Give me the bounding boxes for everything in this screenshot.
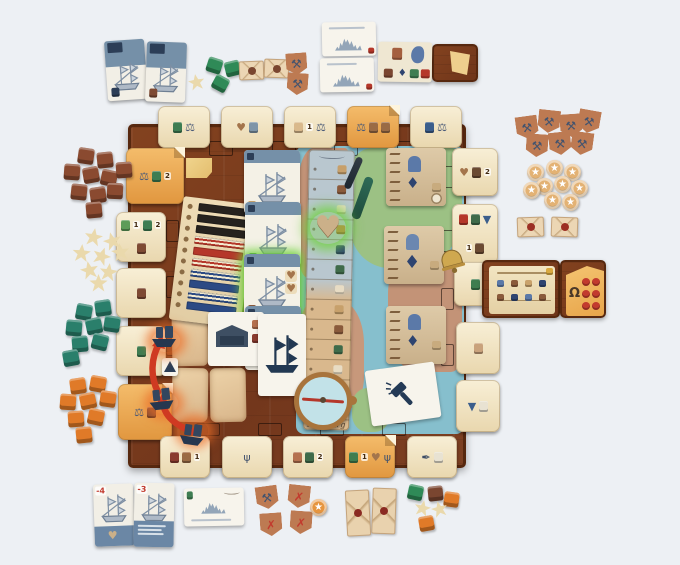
diamond-icon: ♦ — [406, 334, 419, 349]
city-skyline-etching — [328, 30, 370, 53]
reference-tile — [482, 260, 560, 318]
ship-card-sea: ♥ — [94, 525, 135, 546]
track-space[interactable] — [305, 320, 351, 341]
orange-goods-cubes-token[interactable] — [59, 393, 76, 410]
brown-goods-cubes-token[interactable] — [70, 183, 88, 201]
mixed-brown-cube-token[interactable] — [427, 485, 443, 501]
cross-icon: ✗ — [295, 515, 306, 530]
tools-icon: ⚒ — [565, 118, 577, 133]
ship-silhouette-art — [260, 324, 304, 384]
heart-icon: ♥ — [236, 122, 246, 133]
tools-icon: ⚒ — [554, 136, 566, 151]
jug-icon — [152, 171, 161, 182]
track-top-script — [319, 153, 345, 160]
guild-badges-pile-token[interactable]: ⚒ — [525, 133, 549, 157]
heart-icon: ♥ — [107, 529, 117, 542]
cost-number: 1 — [306, 123, 313, 131]
leather-icon — [294, 122, 303, 133]
letter-tokens-brown-seal-token[interactable] — [239, 61, 265, 81]
star-icon: ★ — [531, 167, 540, 178]
gold-corner-tag — [546, 268, 553, 275]
diamond-icon: ♦ — [406, 176, 419, 191]
cross-icon: ✗ — [265, 517, 276, 532]
right-edge-card-5[interactable]: ▼ — [456, 380, 500, 432]
mountain-icon — [249, 122, 258, 133]
star-coins-pile-token[interactable]: ★ — [544, 192, 561, 209]
ship-meeple[interactable] — [152, 326, 176, 347]
tools-icon: ⚒ — [292, 77, 304, 92]
letter-tokens-red-seal-token[interactable] — [551, 217, 579, 238]
draw-deck[interactable] — [432, 44, 478, 82]
horseshoe-icon: Ω — [569, 286, 580, 301]
compass-crown — [348, 396, 357, 405]
goods-icon — [421, 69, 430, 78]
orange-star-coin-token[interactable]: ★ — [310, 499, 327, 516]
star-coins-pile-token[interactable]: ★ — [562, 194, 579, 211]
seahorse-icon — [411, 46, 424, 63]
tools-icon: ⚒ — [576, 136, 589, 151]
bottle-icon — [425, 122, 434, 133]
star-icon: ★ — [566, 197, 575, 208]
deck-paper-corner — [450, 51, 470, 75]
cost-number: 1 — [133, 221, 140, 229]
track-dot — [313, 188, 316, 191]
ship-card-header — [244, 254, 300, 267]
green-goods-cubes-token[interactable] — [205, 56, 224, 75]
building-card-top-1[interactable] — [322, 22, 377, 57]
tools-icon: ⚒ — [582, 114, 595, 130]
scale-icon: ⚖ — [139, 171, 149, 182]
goods-icon — [384, 69, 393, 78]
star-icon: ★ — [568, 167, 577, 178]
contract-card-highlighted[interactable]: ♦ — [384, 226, 444, 284]
cost-number: 2 — [317, 453, 324, 461]
scale-icon: ⚖ — [356, 122, 366, 133]
ship-movement-overlay — [138, 316, 234, 456]
track-space-icon — [335, 285, 344, 294]
bottom-edge-card-3[interactable]: 2 — [283, 436, 333, 478]
star-icon: ★ — [527, 185, 536, 196]
track-dot — [311, 308, 314, 311]
shield-icon — [293, 452, 302, 463]
flag-icon — [247, 257, 254, 264]
cost-number: 1 — [361, 453, 368, 461]
track-space-icon — [333, 365, 342, 374]
chit-icon — [432, 183, 441, 192]
mixed-green-cube-token[interactable] — [407, 484, 425, 502]
right-edge-card-1[interactable]: ♥2 — [452, 148, 498, 196]
track-dot — [313, 168, 316, 171]
guild-badges-pile-token[interactable]: ⚒ — [537, 109, 561, 134]
ship-illustration — [252, 167, 292, 207]
chit-icon — [432, 341, 441, 350]
letter-tokens-brown-seal-token[interactable] — [264, 59, 290, 79]
tally-marks — [390, 153, 400, 201]
brown-goods-cubes-token[interactable] — [96, 151, 114, 169]
orange-goods-cubes-token[interactable] — [99, 390, 117, 408]
goods-icon — [187, 491, 193, 499]
top-edge-card-3[interactable]: 1⚖ — [284, 106, 336, 148]
star-icon: ★ — [548, 195, 557, 206]
penalty-value: -4 — [95, 486, 106, 495]
brown-goods-cubes-token[interactable] — [115, 161, 132, 178]
gavel-icon — [381, 372, 424, 417]
tools-icon: ⚒ — [543, 114, 555, 129]
doc-icon — [434, 452, 443, 463]
orange-goods-cubes-token[interactable] — [87, 408, 106, 427]
funnel-icon: ▼ — [468, 401, 476, 412]
building-card-top-2[interactable] — [320, 58, 375, 93]
tools-icon: ⚒ — [261, 490, 274, 505]
top-edge-card-2[interactable]: ♥ — [221, 106, 273, 148]
ship-card-hand-2[interactable] — [145, 41, 187, 102]
star-icon: ★ — [550, 163, 559, 174]
cost-number: 2 — [484, 168, 491, 176]
pot-icon — [472, 167, 481, 178]
track-dot — [309, 368, 312, 371]
compass-center — [320, 397, 326, 403]
candle_green-icon — [305, 452, 314, 463]
track-space-icon — [336, 245, 345, 254]
ship-illustration — [253, 219, 293, 259]
star-coins-pile-token[interactable]: ★ — [554, 176, 571, 193]
card-slot-outline — [166, 220, 179, 242]
cream-star-meeples-token[interactable] — [71, 243, 92, 264]
track-dot — [311, 288, 314, 291]
crest-card[interactable]: ♦ — [378, 42, 433, 83]
track-space-icon — [335, 265, 344, 274]
cream-star-meeple-single-token[interactable] — [187, 73, 207, 93]
track-dot — [310, 348, 313, 351]
trident-icon: ψ — [243, 452, 250, 463]
round-stamp-icon — [431, 193, 442, 204]
jug-icon — [143, 220, 152, 231]
heart-icon: ♥ — [459, 167, 469, 178]
track-dot — [312, 248, 315, 251]
flag-icon — [247, 153, 254, 160]
star-icon: ★ — [540, 181, 549, 192]
scale-icon: ⚖ — [185, 122, 195, 133]
track-space[interactable] — [305, 340, 351, 361]
right-edge-card-4[interactable] — [456, 322, 500, 374]
track-space-icon — [337, 165, 346, 174]
folded-corner — [385, 435, 396, 446]
letter-tokens-red-seal-token[interactable] — [517, 217, 545, 238]
star-coins-pile-token[interactable]: ★ — [523, 182, 540, 199]
jar-icon — [349, 452, 358, 463]
teal-goods-cubes-token[interactable] — [65, 319, 82, 336]
orange-goods-cubes-token[interactable] — [67, 410, 84, 427]
cost-number: 1 — [466, 244, 473, 252]
heart-icon: ♥ — [371, 452, 381, 463]
star-coins-pile-token[interactable]: ★ — [546, 160, 563, 177]
funnel-icon: ▼ — [483, 214, 491, 225]
letter-tokens-portrait-token[interactable] — [345, 489, 371, 536]
badges-red-x-token[interactable]: ✗ — [289, 510, 313, 534]
track-dot — [311, 268, 314, 271]
brown-goods-cubes-token[interactable] — [63, 163, 80, 180]
top-edge-card-5[interactable]: ⚖ — [410, 106, 462, 148]
diamond-icon: ♦ — [404, 254, 420, 272]
cost-number: 2 — [164, 172, 171, 180]
sack-icon — [369, 122, 378, 133]
ship-card-hand-1[interactable] — [104, 39, 148, 102]
tally-marks — [388, 231, 398, 279]
guild-badges-pile-token[interactable]: ⚒ — [570, 131, 595, 157]
badges-red-x-token[interactable]: ✗ — [287, 484, 311, 509]
city-skyline-etching — [194, 495, 234, 516]
ship-card-discard-2[interactable]: -3 — [133, 483, 174, 548]
jug-icon — [173, 122, 182, 133]
chit-icon — [430, 261, 439, 270]
orange-goods-cubes-token[interactable] — [75, 426, 93, 444]
church-icon — [408, 156, 421, 172]
guild-badges-top-left-token[interactable]: ⚒ — [286, 72, 308, 95]
sack-icon — [381, 122, 390, 133]
track-dot — [310, 328, 313, 331]
top-left-corner-card[interactable]: ⚖2 — [126, 148, 184, 204]
shield-icon — [392, 48, 402, 60]
horseshoe-card[interactable]: Ω — [566, 266, 604, 316]
leaf-icon — [121, 220, 130, 231]
flag-score-panel — [169, 196, 256, 328]
scale-icon: ⚖ — [316, 122, 326, 133]
badges-red-x-token[interactable]: ✗ — [259, 512, 283, 536]
city-skyline-etching — [326, 66, 368, 89]
movement-arrow — [152, 344, 159, 392]
ship-card-header — [245, 202, 301, 215]
teal-goods-cubes-token[interactable] — [90, 332, 109, 351]
sticky-note[interactable] — [186, 158, 212, 178]
penalty-value: -3 — [136, 485, 147, 494]
trident-icon: ψ — [384, 452, 391, 463]
top-edge-card-4[interactable]: ⚖ — [347, 106, 399, 148]
heart-token-highlighted[interactable]: ♥ — [310, 212, 346, 244]
track-space[interactable] — [305, 300, 351, 321]
banner-icon — [107, 42, 123, 53]
track-space-icon — [334, 325, 343, 334]
scale-icon: ⚖ — [437, 122, 447, 133]
reference-card[interactable] — [489, 266, 555, 314]
corner-mark — [366, 84, 372, 90]
city-card-bottom[interactable] — [184, 487, 245, 526]
folded-corner — [389, 105, 400, 116]
folded-corner — [174, 147, 185, 158]
letter-tokens-portrait-token[interactable] — [371, 488, 397, 535]
teal-goods-cubes-token[interactable] — [103, 315, 121, 333]
tools-icon: ⚒ — [531, 138, 543, 153]
card-slot-outline — [258, 423, 282, 436]
top-edge-card-1[interactable]: ⚖ — [158, 106, 210, 148]
ship-card-discard-1[interactable]: -4 ♥ — [93, 483, 135, 546]
goods-icon — [111, 88, 120, 98]
track-space-icon — [334, 305, 343, 314]
track-space-icon — [334, 345, 343, 354]
church-icon — [408, 314, 421, 330]
guild-badges-pile-token[interactable]: ⚒ — [548, 131, 572, 156]
quill-icon: ✒ — [421, 452, 430, 463]
tally-marks — [390, 311, 400, 359]
diamond-icon: ♦ — [398, 68, 407, 79]
ship-card-header — [244, 150, 300, 163]
tools-icon: ⚒ — [291, 57, 303, 72]
contract-card-3[interactable]: ♦ — [386, 306, 446, 364]
bottom-edge-card-5[interactable]: ✒ — [407, 436, 457, 478]
candle_green-icon — [471, 214, 480, 225]
cost-number: 2 — [155, 221, 162, 229]
table-background: ♥♥ Hamburg ♥ ♦ ♦ ♦ — [0, 0, 680, 565]
pot-icon — [475, 243, 484, 254]
cream-star-meeples-token[interactable] — [82, 226, 104, 248]
pouch-icon — [137, 243, 146, 254]
tools-icon: ⚒ — [521, 120, 534, 135]
brown-goods-cubes-token[interactable] — [82, 166, 101, 185]
pig-icon — [474, 343, 483, 354]
goods-icon — [149, 88, 157, 97]
compass — [294, 372, 352, 430]
flag-icon — [248, 205, 255, 212]
badge-crossed-tools-token[interactable]: ⚒ — [255, 485, 280, 511]
brown-goods-cubes-token[interactable] — [77, 147, 95, 165]
star-icon: ★ — [575, 183, 584, 194]
jar-icon — [471, 279, 480, 290]
goods-icon — [410, 69, 419, 78]
star-icon: ★ — [558, 179, 567, 190]
mixed-orange-cubes-token[interactable] — [418, 515, 435, 532]
candle_red-icon — [459, 214, 468, 225]
bottom-edge-card-4[interactable]: 1♥ψ — [345, 436, 395, 478]
ship-card-sea — [133, 521, 173, 548]
heart-token-glyph: ♥ — [315, 213, 342, 243]
pouch-icon — [137, 288, 146, 299]
cross-icon: ✗ — [293, 489, 304, 504]
track-space[interactable] — [306, 260, 352, 281]
track-space[interactable] — [306, 280, 352, 301]
orange-goods-cubes-token[interactable] — [69, 377, 87, 395]
left-edge-card-3[interactable] — [116, 268, 166, 318]
church-icon — [406, 234, 419, 250]
heart-reward-icons: ♥♥ — [285, 270, 297, 294]
brown-goods-cubes-token[interactable] — [85, 201, 102, 218]
contract-card-1[interactable]: ♦ — [386, 148, 446, 206]
doc-icon — [479, 401, 488, 412]
auction-gavel-card[interactable] — [364, 361, 441, 426]
horseshoe-tile: Ω — [560, 260, 606, 318]
teal-goods-cubes-token[interactable] — [62, 349, 81, 368]
banner-icon — [150, 43, 165, 54]
teal-goods-cubes-token[interactable] — [94, 299, 112, 317]
corner-mark — [368, 48, 374, 54]
brown-goods-cubes-token[interactable] — [107, 183, 124, 200]
star-icon: ★ — [314, 502, 323, 513]
